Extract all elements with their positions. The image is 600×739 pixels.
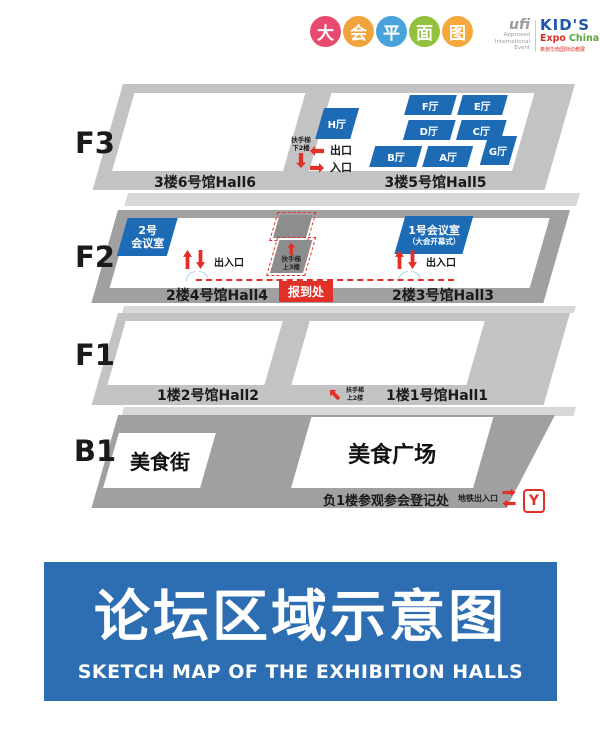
entrance-label: 入口 [330,159,352,175]
gate-left-label: 出入口 [214,254,244,269]
title-circle-3: 平 [376,16,407,47]
room2-line1: 2号 [131,224,164,237]
mini-hall-a-label: A厅 [439,149,457,164]
kids-expo-logo: KID'S ExpoChina 奥驰华南国际幼教展 [540,17,598,53]
gate-right-label: 出入口 [426,254,456,269]
up-arrow-icon [287,243,295,255]
exhibition-floor-plan: 大 会 平 面 图 ufi Approved International Eve… [0,0,600,739]
escalator-note-line2: 上3楼 [281,263,301,271]
mini-hall-f-label: F厅 [422,98,439,113]
hall1-area [291,321,484,385]
food-street-label: 美食街 [129,446,189,475]
f2-concourse-area [110,218,550,288]
floor-label-b1: B1 [72,434,118,468]
title-char: 平 [383,19,400,44]
title-char: 大 [317,19,334,44]
kids-logo-subtitle: ExpoChina [540,33,598,44]
registration-label: 负1楼参观参会登记处 [323,490,449,509]
hall3-band-label: 2楼3号馆Hall3 [368,285,518,305]
bottom-banner: 论坛区域示意图 SKETCH MAP OF THE EXHIBITION HAL… [44,562,557,701]
room1-line1: 1号会议室 [408,224,461,237]
banner-title: 论坛区域示意图 [44,572,557,653]
banner-subtitle: SKETCH MAP OF THE EXHIBITION HALLS [44,661,557,683]
hall5-band-label: 3楼5号馆Hall5 [358,172,513,192]
hall2-area [107,321,282,385]
title-char: 图 [449,19,466,44]
title-char: 会 [350,19,367,44]
escalator-up-note: 扶手梯 上3楼 [281,243,301,271]
logo-divider [535,20,536,52]
room1-line2: （大会开幕式） [408,237,461,246]
title-char: 面 [416,19,433,44]
mini-hall-g-label: G厅 [489,143,507,158]
mini-hall-d: D厅 [403,120,456,140]
floor-label-f2: F2 [72,240,118,274]
mini-hall-b-label: B厅 [387,149,405,164]
food-street-area: 美食街 [103,433,216,488]
kids-logo-china: China [569,33,599,44]
kids-logo-caption: 奥驰华南国际幼教展 [540,46,598,53]
food-plaza-label: 美食广场 [348,437,436,469]
floor-label-f1: F1 [72,338,118,372]
floor-slab-1 [124,193,580,206]
title-circle-1: 大 [310,16,341,47]
mini-hall-d-label: D厅 [420,123,438,138]
mini-hall-a: A厅 [422,146,473,167]
floor-label-f3: F3 [72,126,118,160]
title-circle-5: 图 [442,16,473,47]
hall2-band-label: 1楼2号馆Hall2 [128,385,288,405]
ufi-logo: ufi Approved International Event [472,19,530,52]
food-plaza-area: 美食广场 [291,417,493,488]
floor-slab-3 [121,407,576,416]
exit-label: 出口 [330,142,352,158]
mini-hall-f: F厅 [404,95,457,115]
metro-entrance-label: 地铁出入口 [458,493,498,504]
hall4-band-label: 2楼4号馆Hall4 [142,285,292,305]
conference-room-2-label: 2号 会议室 [131,224,164,250]
ufi-event-text: Event [472,45,530,52]
mini-hall-e: E厅 [457,95,508,115]
conference-room-1-label: 1号会议室 （大会开幕式） [408,224,461,246]
hall6-area [112,93,305,171]
metro-logo-letter: Y [529,493,539,509]
metro-logo-icon: Y [523,489,545,513]
escalator-note-line1: 扶手梯 [281,256,301,264]
floor-slab-2 [122,306,576,313]
escalator-shaft-upper [273,215,313,238]
mini-hall-b: B厅 [369,146,422,167]
title-circle-2: 会 [343,16,374,47]
mini-hall-h-label: H厅 [328,116,346,131]
room2-line2: 会议室 [131,237,164,250]
ufi-brand-text: ufi [472,19,530,32]
checkin-desk: 报到处 [279,281,333,302]
title-circle-4: 面 [409,16,440,47]
kids-logo-expo: Expo [540,33,566,44]
hall1-band-label: 1楼1号馆Hall1 [362,385,512,405]
conference-room-1: 1号会议室 （大会开幕式） [394,216,473,254]
kids-logo-title: KID'S [540,17,598,33]
hall6-band-label: 3楼6号馆Hall6 [130,172,280,192]
page-title-circles: 大 会 平 面 图 [310,16,473,47]
mini-hall-e-label: E厅 [474,98,491,113]
